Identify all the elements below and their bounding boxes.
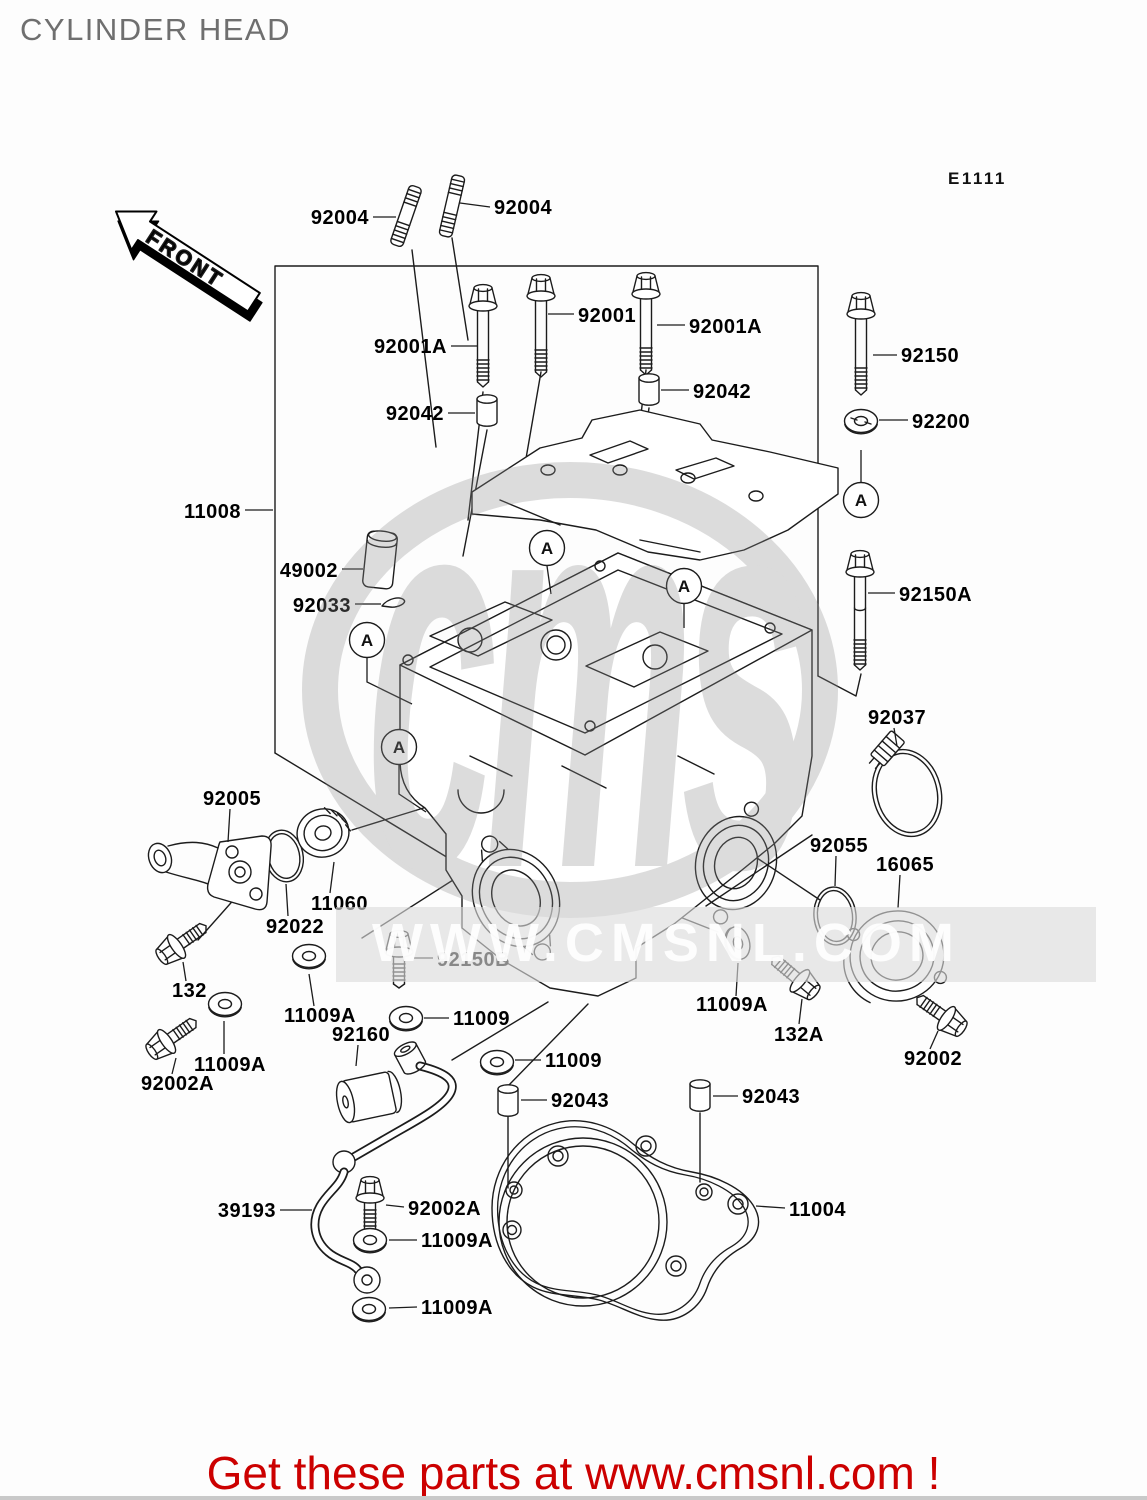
- part-11009a-washer-b1: [354, 1229, 387, 1253]
- part-11009-washer-upper: [390, 1007, 423, 1031]
- label-92005: 92005: [203, 788, 261, 810]
- part-92002a-bolt-bottom: [356, 1177, 384, 1234]
- label-49002: 49002: [280, 560, 338, 582]
- label-132a: 132A: [774, 1024, 824, 1046]
- label-11009a-right: 11009A: [696, 994, 768, 1016]
- leader-line: [835, 856, 836, 886]
- label-92043-right: 92043: [742, 1086, 800, 1108]
- part-92150a-bolt: [846, 551, 874, 670]
- part-11009a-washer-mid: [293, 945, 326, 969]
- leader-line: [898, 875, 900, 908]
- label-11009a-b2: 11009A: [421, 1297, 493, 1319]
- label-132: 132: [172, 980, 207, 1002]
- part-92043-dowel-right: [690, 1080, 710, 1111]
- part-92043-dowel-left: [498, 1085, 518, 1116]
- label-92200: 92200: [912, 411, 970, 433]
- leader-line: [172, 1058, 176, 1074]
- leader-line: [356, 1045, 358, 1066]
- svg-text:A: A: [855, 491, 867, 510]
- label-92004-right: 92004: [494, 197, 552, 219]
- label-11008: 11008: [184, 501, 241, 523]
- promo-link[interactable]: Get these parts at www.cmsnl.com !: [0, 1446, 1147, 1500]
- part-11009a-washer-b2: [353, 1298, 386, 1322]
- part-92150-bolt: [847, 293, 875, 395]
- leader-line: [389, 1307, 417, 1308]
- part-132-bolt: [151, 914, 214, 970]
- label-16065: 16065: [876, 854, 934, 876]
- label-92001: 92001: [578, 305, 636, 327]
- label-92160: 92160: [332, 1024, 390, 1046]
- part-92160-fitting: [333, 1039, 452, 1173]
- label-92002a-left: 92002A: [141, 1073, 214, 1095]
- diagram-code: E1111: [948, 169, 1007, 188]
- parts-diagram: FRONT A A A A: [0, 0, 1147, 1500]
- part-11009-washer-lower: [481, 1051, 514, 1075]
- svg-text:cms: cms: [367, 360, 807, 986]
- part-92037-clamp: [858, 722, 950, 844]
- part-92200-washer: [845, 410, 878, 434]
- cms-logo-watermark: cms: [320, 360, 820, 986]
- part-92004-stud-left: [390, 185, 422, 248]
- label-92022: 92022: [266, 916, 324, 938]
- front-direction-badge: FRONT: [99, 193, 272, 331]
- label-92150: 92150: [901, 345, 959, 367]
- part-92004-stud-right: [439, 174, 466, 237]
- label-11004: 11004: [789, 1199, 846, 1221]
- leader-line: [286, 884, 288, 916]
- label-92002a-bottom: 92002A: [408, 1198, 481, 1220]
- label-11009a-b1: 11009A: [421, 1230, 493, 1252]
- leader-line: [799, 999, 802, 1024]
- label-92001a-left: 92001A: [374, 336, 447, 358]
- label-11009-lower: 11009: [545, 1050, 602, 1072]
- leader-line: [309, 974, 314, 1006]
- leader-line: [330, 862, 334, 893]
- leader-line: [386, 1205, 404, 1207]
- label-92055: 92055: [810, 835, 868, 857]
- watermark: cms WWW.CMSNL.COM: [320, 360, 1096, 986]
- marker-a-1: A: [844, 450, 879, 518]
- label-92043-left: 92043: [551, 1090, 609, 1112]
- label-92002: 92002: [904, 1048, 962, 1070]
- label-92004-left: 92004: [311, 207, 369, 229]
- watermark-url: WWW.CMSNL.COM: [372, 913, 961, 973]
- leader-line: [183, 962, 186, 981]
- leader-line: [460, 203, 490, 207]
- leader-line: [756, 1206, 785, 1208]
- part-11009a-washer-left: [209, 993, 242, 1017]
- parts-fiche-page: CYLINDER HEAD: [0, 0, 1147, 1500]
- label-92037: 92037: [868, 707, 926, 729]
- part-11004-gasket: [492, 1121, 759, 1320]
- label-11009-upper: 11009: [453, 1008, 510, 1030]
- leader-line: [228, 809, 230, 842]
- label-92001a-right: 92001A: [689, 316, 762, 338]
- part-92005-fitting: [145, 836, 272, 910]
- label-92150a: 92150A: [899, 584, 972, 606]
- bottom-strip: [0, 1496, 1147, 1500]
- label-39193: 39193: [218, 1200, 276, 1222]
- leader-line: [930, 1031, 938, 1049]
